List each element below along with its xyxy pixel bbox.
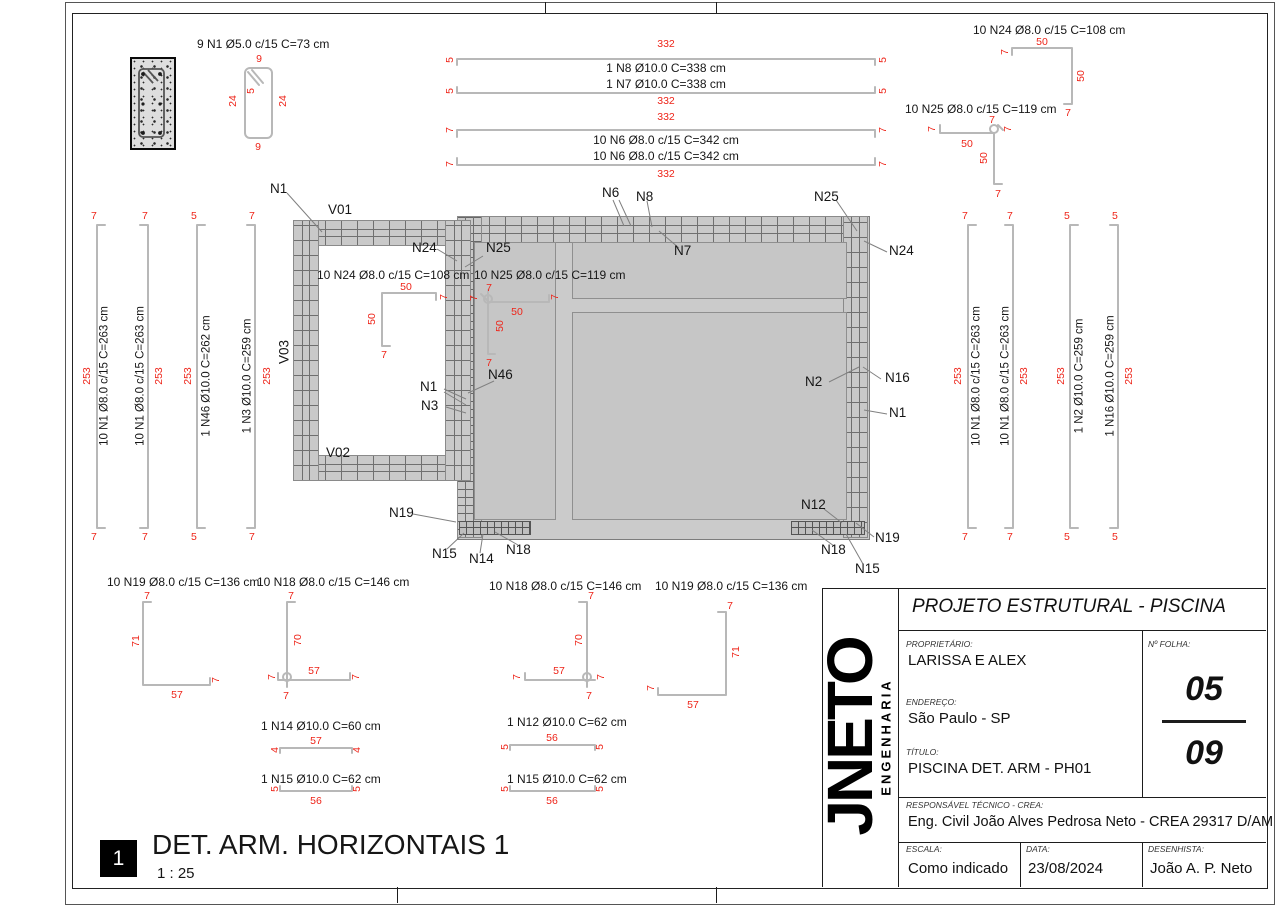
dim: 56: [546, 733, 558, 744]
dim: 7: [1065, 108, 1071, 119]
bar-label: 10 N24 Ø8.0 c/15 C=108 cm: [973, 24, 1125, 36]
bar-n24-plan: [382, 293, 436, 346]
dim: 24: [228, 95, 239, 107]
dim: 5: [1112, 211, 1118, 222]
titleblock-line: [1142, 630, 1143, 797]
beam-label-v02: V02: [326, 446, 350, 460]
dim: 70: [293, 634, 304, 646]
dim: 7: [267, 674, 278, 680]
dim: 5: [500, 786, 511, 792]
dim: 253: [154, 367, 165, 385]
dim: 5: [1112, 532, 1118, 543]
titleblock-line: [822, 588, 1266, 589]
bar-label: 10 N25 Ø8.0 c/15 C=119 cm: [905, 103, 1057, 115]
dim: 50: [367, 313, 378, 325]
dim: 253: [953, 367, 964, 385]
bar-label: 1 N15 Ø10.0 C=62 cm: [261, 773, 381, 785]
bar-label: 1 N46 Ø10.0 C=262 cm: [201, 315, 213, 436]
dim: 7: [249, 532, 255, 543]
bar-label: 1 N7 Ø10.0 C=338 cm: [606, 78, 726, 90]
dim: 5: [1064, 211, 1070, 222]
bar-n15b: [510, 786, 595, 791]
bar-label: 10 N1 Ø8.0 c/15 C=263 cm: [135, 306, 147, 446]
dim: 9: [255, 142, 261, 153]
dim: 253: [1056, 367, 1067, 385]
dim: 7: [142, 211, 148, 222]
dim: 7: [211, 677, 222, 683]
view-number: 1: [113, 847, 125, 871]
beam-label-v01: V01: [328, 203, 352, 217]
titleblock-line: [898, 630, 1266, 631]
dim: 7: [596, 674, 607, 680]
dim: 7: [469, 295, 480, 301]
dim: 56: [546, 796, 558, 807]
dim: 332: [657, 39, 675, 50]
bar-label: 10 N6 Ø8.0 c/15 C=342 cm: [593, 134, 739, 146]
callout-n24: N24: [412, 241, 437, 255]
callout-n12: N12: [801, 498, 826, 512]
titleblock-line: [1020, 842, 1021, 887]
dim: 4: [352, 747, 363, 753]
sheet-total: 09: [1185, 736, 1223, 770]
callout-n8: N8: [636, 190, 653, 204]
date-label: DATA:: [1026, 845, 1050, 854]
callout-n15: N15: [432, 547, 457, 561]
address-label: ENDEREÇO:: [906, 698, 957, 707]
callout-n1: N1: [270, 182, 287, 196]
sheet-number: 05: [1185, 672, 1223, 706]
bar-label: 10 N19 Ø8.0 c/15 C=136 cm: [107, 576, 259, 588]
bar-n19-bm: [658, 612, 726, 695]
dim: 253: [1124, 367, 1135, 385]
dim: 7: [989, 115, 995, 126]
dim: 7: [550, 294, 561, 300]
dim: 5: [445, 88, 456, 94]
dim: 4: [270, 747, 281, 753]
date-value: 23/08/2024: [1028, 861, 1103, 876]
bar-label: 10 N18 Ø8.0 c/15 C=146 cm: [257, 576, 409, 588]
dim: 5: [191, 532, 197, 543]
titleblock-line: [1142, 842, 1143, 887]
callout-n14: N14: [469, 552, 494, 566]
callout-n7: N7: [674, 244, 691, 258]
dim: 7: [927, 126, 938, 132]
dim: 7: [512, 674, 523, 680]
callout-n24: N24: [889, 244, 914, 258]
dim: 7: [878, 161, 889, 167]
dim: 7: [91, 211, 97, 222]
dim: 332: [657, 112, 675, 123]
dim: 50: [495, 320, 506, 332]
sheet-number-label: Nº FOLHA:: [1148, 640, 1190, 649]
dim: 57: [310, 736, 322, 747]
bar-label: 10 N1 Ø8.0 c/15 C=263 cm: [971, 306, 983, 446]
dim: 57: [553, 666, 565, 677]
callout-n3: N3: [421, 399, 438, 413]
dim: 7: [1007, 211, 1013, 222]
bar-label: 10 N18 Ø8.0 c/15 C=146 cm: [489, 580, 641, 592]
dim: 7: [142, 532, 148, 543]
callout-n25: N25: [814, 190, 839, 204]
dim: 7: [445, 127, 456, 133]
stirrup-label: 9 N1 Ø5.0 c/15 C=73 cm: [197, 38, 329, 50]
dim: 5: [878, 88, 889, 94]
callout-n18: N18: [506, 543, 531, 557]
bar-n12: [510, 745, 595, 750]
callout-n19: N19: [389, 506, 414, 520]
bar-n14: [280, 748, 352, 753]
dim: 5: [500, 744, 511, 750]
bar-label: 10 N24 Ø8.0 c/15 C=108 cm: [317, 269, 469, 281]
dim: 7: [586, 691, 592, 702]
bar-label: 1 N12 Ø10.0 C=62 cm: [507, 716, 627, 728]
scale-value: Como indicado: [908, 861, 1008, 876]
dim: 253: [82, 367, 93, 385]
dim: 7: [1000, 49, 1011, 55]
dim: 50: [979, 152, 990, 164]
bar-n24-detail: [1012, 48, 1072, 104]
callout-n6: N6: [602, 186, 619, 200]
bar-label: 10 N6 Ø8.0 c/15 C=342 cm: [593, 150, 739, 162]
dim: 71: [131, 635, 142, 647]
bar-label: 10 N25 Ø8.0 c/15 C=119 cm: [474, 269, 626, 281]
dim: 9: [256, 54, 262, 65]
dim: 7: [1007, 532, 1013, 543]
dim: 5: [1064, 532, 1070, 543]
dim: 70: [574, 634, 585, 646]
dim: 7: [727, 601, 733, 612]
bar-n15a: [280, 786, 352, 791]
bar-label: 1 N3 Ø10.0 C=259 cm: [242, 319, 254, 434]
bar-label: 1 N14 Ø10.0 C=60 cm: [261, 720, 381, 732]
dim: 253: [183, 367, 194, 385]
dim: 5: [352, 786, 363, 792]
company-logo-subtitle: ENGENHARIA: [880, 678, 893, 795]
dim: 7: [381, 350, 387, 361]
dim: 57: [171, 690, 183, 701]
bar-label: 10 N1 Ø8.0 c/15 C=263 cm: [1000, 306, 1012, 446]
dim: 7: [283, 691, 289, 702]
dim: 332: [657, 169, 675, 180]
dim: 50: [1036, 37, 1048, 48]
dim: 5: [270, 786, 281, 792]
titleblock-line: [898, 797, 1266, 798]
bar-label: 1 N16 Ø10.0 C=259 cm: [1105, 315, 1117, 436]
dim: 253: [1019, 367, 1030, 385]
dim: 5: [595, 744, 606, 750]
dim: 50: [400, 282, 412, 293]
callout-n16: N16: [885, 371, 910, 385]
dim: 5: [191, 211, 197, 222]
dim: 7: [351, 674, 362, 680]
address-value: São Paulo - SP: [908, 711, 1011, 726]
title-value: PISCINA DET. ARM - PH01: [908, 761, 1091, 776]
view-scale: 1 : 25: [157, 866, 195, 881]
dim: 5: [445, 57, 456, 63]
dim: 57: [308, 666, 320, 677]
owner-value: LARISSA E ALEX: [908, 653, 1026, 668]
titleblock-line: [898, 842, 1266, 843]
dim: 56: [310, 796, 322, 807]
leader-lines: [287, 193, 887, 564]
dim: 7: [962, 211, 968, 222]
dim: 7: [588, 591, 594, 602]
drafter-label: DESENHISTA:: [1148, 845, 1204, 854]
dim: 7: [1003, 126, 1014, 132]
dim: 5: [878, 57, 889, 63]
dim: 50: [511, 307, 523, 318]
callout-n15: N15: [855, 562, 880, 576]
dim: 5: [595, 786, 606, 792]
dim: 7: [439, 294, 450, 300]
dim: 7: [249, 211, 255, 222]
title-label: TÍTULO:: [906, 748, 939, 757]
callout-n25: N25: [486, 241, 511, 255]
bar-label: 1 N8 Ø10.0 C=338 cm: [606, 62, 726, 74]
company-logo: JNETO: [818, 638, 882, 835]
dim: 253: [262, 367, 273, 385]
dim: 7: [878, 127, 889, 133]
dim: 7: [91, 532, 97, 543]
dim: 57: [687, 700, 699, 711]
bar-label: 1 N15 Ø10.0 C=62 cm: [507, 773, 627, 785]
sheet-number-divider: [1162, 720, 1246, 723]
dim: 50: [961, 139, 973, 150]
bar-n25-detail: [940, 125, 1002, 184]
callout-n1: N1: [420, 380, 437, 394]
dim: 7: [445, 161, 456, 167]
callout-n19: N19: [875, 531, 900, 545]
dim: 7: [995, 189, 1001, 200]
beam-label-v03: V03: [277, 340, 291, 364]
view-number-box: 1: [100, 840, 137, 877]
dim: 24: [278, 95, 289, 107]
callout-n46: N46: [488, 368, 513, 382]
owner-label: PROPRIETÁRIO:: [906, 640, 973, 649]
bar-n19-bl: [143, 602, 210, 685]
callout-n2: N2: [805, 375, 822, 389]
view-title: DET. ARM. HORIZONTAIS 1: [152, 831, 509, 859]
responsible-label: RESPONSÁVEL TÉCNICO - CREA:: [906, 801, 1043, 810]
responsible-value: Eng. Civil João Alves Pedrosa Neto - CRE…: [908, 815, 1273, 830]
scale-label: ESCALA:: [906, 845, 942, 854]
project-title: PROJETO ESTRUTURAL - PISCINA: [912, 597, 1226, 616]
callout-n1: N1: [889, 406, 906, 420]
dim: 50: [1076, 70, 1087, 82]
dim: 7: [486, 283, 492, 294]
dim: 7: [962, 532, 968, 543]
drawing-sheet: 9 N1 Ø5.0 c/15 C=73 cm 9 24 24 9 5 332 1…: [0, 0, 1280, 905]
dim: 7: [288, 591, 294, 602]
dim: 332: [657, 96, 675, 107]
callout-n18: N18: [821, 543, 846, 557]
dim: 71: [731, 646, 742, 658]
dim: 5: [246, 88, 257, 94]
bar-label: 1 N2 Ø10.0 C=259 cm: [1074, 319, 1086, 434]
bar-label: 10 N19 Ø8.0 c/15 C=136 cm: [655, 580, 807, 592]
dim: 7: [144, 591, 150, 602]
dim: 7: [646, 685, 657, 691]
bar-label: 10 N1 Ø8.0 c/15 C=263 cm: [99, 306, 111, 446]
drafter-value: João A. P. Neto: [1150, 861, 1252, 876]
